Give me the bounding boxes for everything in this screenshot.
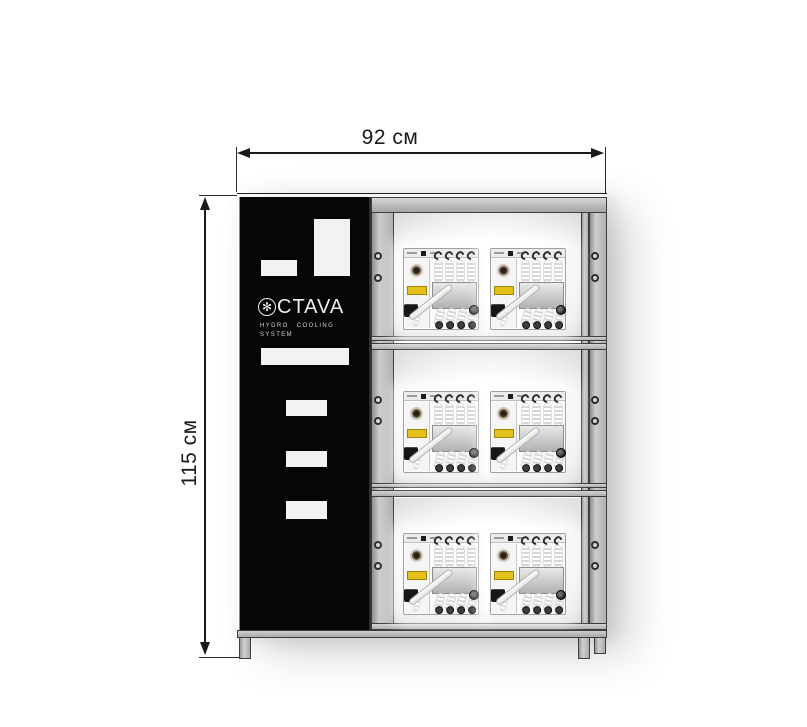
- mounting-hole: [374, 274, 382, 282]
- machine-warning-label: [494, 286, 514, 295]
- panel-vent-slot: [286, 501, 327, 519]
- rack-top-rail: [371, 197, 607, 213]
- coiled-hose-bottom: [520, 307, 533, 328]
- machine-warning-label: [407, 571, 427, 580]
- coiled-hose-top: [434, 260, 443, 283]
- coiled-hose-bottom: [520, 592, 533, 613]
- mounting-hole: [591, 417, 599, 425]
- coiled-hose-bottom: [455, 450, 468, 471]
- brand-logo: ✻ CTAVA: [258, 295, 358, 319]
- machine-warning-label: [407, 286, 427, 295]
- coiled-hose-top: [467, 545, 476, 568]
- machine-knob: [556, 448, 566, 458]
- coiled-hose-top: [445, 545, 454, 568]
- cooling-unit: [490, 391, 566, 473]
- machine-port-square: [421, 536, 426, 541]
- cooling-unit: [490, 248, 566, 330]
- height-extension-line-bottom: [199, 657, 241, 658]
- panel-vent-wide: [261, 348, 349, 365]
- height-dimension-label: 115 см: [178, 383, 202, 523]
- machine-round-port: [410, 407, 423, 420]
- machine-port-square: [421, 251, 426, 256]
- coiled-hose-top: [445, 260, 454, 283]
- mounting-hole: [591, 274, 599, 282]
- machine-port-square: [508, 394, 513, 399]
- brand-door-panel: ✻ CTAVA HYDRO COOLING SYSTEM: [239, 197, 371, 630]
- cabinet-leg-left: [239, 638, 251, 659]
- mounting-hole: [591, 541, 599, 549]
- coiled-hose-bottom: [444, 450, 457, 471]
- panel-vent-slot: [286, 400, 327, 416]
- machine-knob: [469, 448, 479, 458]
- cabinet-bottom-rail: [237, 630, 607, 638]
- width-dimension-line: [249, 152, 592, 154]
- height-extension-line-top: [199, 195, 238, 196]
- cooling-unit: [403, 533, 479, 615]
- coiled-hose-top: [554, 403, 563, 426]
- coiled-hose-top: [521, 403, 530, 426]
- coiled-hose-top: [543, 403, 552, 426]
- arrowhead-left-icon: [237, 148, 250, 158]
- panel-cutout-display: [314, 219, 350, 276]
- machine-header-markings: [494, 395, 504, 397]
- cabinet-leg-right-back: [594, 638, 606, 654]
- brand-logo-text: CTAVA: [277, 296, 344, 319]
- height-dimension-line: [204, 208, 206, 644]
- machine-knob: [556, 590, 566, 600]
- cabinet-leg-right-front: [578, 638, 590, 659]
- shelf-rail: [371, 336, 607, 341]
- coiled-hose-top: [521, 260, 530, 283]
- coiled-hose-top: [434, 403, 443, 426]
- arrowhead-down-icon: [200, 642, 210, 655]
- rack-bottom-rail: [371, 623, 607, 630]
- coiled-hose-bottom: [542, 592, 555, 613]
- equipment-rack: [371, 197, 607, 630]
- machine-header-markings: [407, 395, 417, 397]
- brand-tagline-line2: SYSTEM: [260, 332, 293, 338]
- machine-port-square: [421, 394, 426, 399]
- mounting-hole: [374, 562, 382, 570]
- coiled-hose-bottom: [455, 307, 468, 328]
- coiled-hose-top: [434, 545, 443, 568]
- coiled-hose-bottom: [542, 450, 555, 471]
- cooling-cabinet: ✻ CTAVA HYDRO COOLING SYSTEM: [237, 193, 607, 638]
- coiled-hose-top: [554, 260, 563, 283]
- coiled-hose-bottom: [433, 450, 446, 471]
- brand-tagline-line1: HYDRO COOLING: [260, 323, 334, 329]
- machine-knob: [556, 305, 566, 315]
- mounting-hole: [374, 396, 382, 404]
- coiled-hose-top: [445, 403, 454, 426]
- machine-warning-label: [407, 429, 427, 438]
- coiled-hose-top: [521, 545, 530, 568]
- panel-cutout-small: [261, 260, 297, 276]
- machine-warning-label: [494, 429, 514, 438]
- width-dimension-label: 92 см: [330, 126, 450, 150]
- coiled-hose-bottom: [531, 307, 544, 328]
- coiled-hose-top: [467, 260, 476, 283]
- panel-vent-slot: [286, 451, 327, 467]
- mounting-hole: [591, 396, 599, 404]
- mounting-hole: [591, 252, 599, 260]
- machine-header-markings: [494, 537, 504, 539]
- rack-post-right-inner: [581, 213, 589, 623]
- coiled-hose-bottom: [520, 450, 533, 471]
- coiled-hose-top: [532, 545, 541, 568]
- arrowhead-up-icon: [200, 197, 210, 210]
- cooling-unit: [403, 248, 479, 330]
- arrowhead-right-icon: [591, 148, 604, 158]
- mounting-hole: [374, 541, 382, 549]
- coiled-hose-bottom: [455, 592, 468, 613]
- machine-port-square: [508, 536, 513, 541]
- coiled-hose-bottom: [531, 450, 544, 471]
- machine-round-port: [497, 549, 510, 562]
- machine-round-port: [410, 549, 423, 562]
- machine-round-port: [410, 264, 423, 277]
- coiled-hose-top: [532, 260, 541, 283]
- coiled-hose-top: [554, 545, 563, 568]
- machine-header-markings: [494, 252, 504, 254]
- coiled-hose-top: [543, 260, 552, 283]
- width-extension-line-right: [605, 147, 606, 194]
- mounting-hole: [374, 252, 382, 260]
- coiled-hose-top: [456, 403, 465, 426]
- coiled-hose-bottom: [444, 307, 457, 328]
- coiled-hose-bottom: [531, 592, 544, 613]
- machine-round-port: [497, 264, 510, 277]
- coiled-hose-bottom: [444, 592, 457, 613]
- shelf-rail: [371, 490, 607, 497]
- machine-port-square: [508, 251, 513, 256]
- machine-round-port: [497, 407, 510, 420]
- dimensioned-cabinet-diagram: 92 см 115 см ✻ CTAVA HYDRO COOLING SYSTE…: [0, 0, 807, 727]
- machine-knob: [469, 590, 479, 600]
- mounting-hole: [591, 562, 599, 570]
- coiled-hose-top: [532, 403, 541, 426]
- width-extension-line-left: [236, 147, 237, 192]
- machine-knob: [469, 305, 479, 315]
- machine-header-markings: [407, 252, 417, 254]
- cooling-unit: [490, 533, 566, 615]
- snowflake-icon: ✻: [258, 298, 276, 316]
- coiled-hose-top: [456, 260, 465, 283]
- machine-warning-label: [494, 571, 514, 580]
- mounting-hole: [374, 417, 382, 425]
- coiled-hose-top: [456, 545, 465, 568]
- coiled-hose-top: [467, 403, 476, 426]
- coiled-hose-bottom: [542, 307, 555, 328]
- coiled-hose-bottom: [433, 592, 446, 613]
- coiled-hose-top: [543, 545, 552, 568]
- coiled-hose-bottom: [433, 307, 446, 328]
- shelf-rail: [371, 343, 607, 350]
- machine-header-markings: [407, 537, 417, 539]
- cooling-unit: [403, 391, 479, 473]
- shelf-rail: [371, 483, 607, 488]
